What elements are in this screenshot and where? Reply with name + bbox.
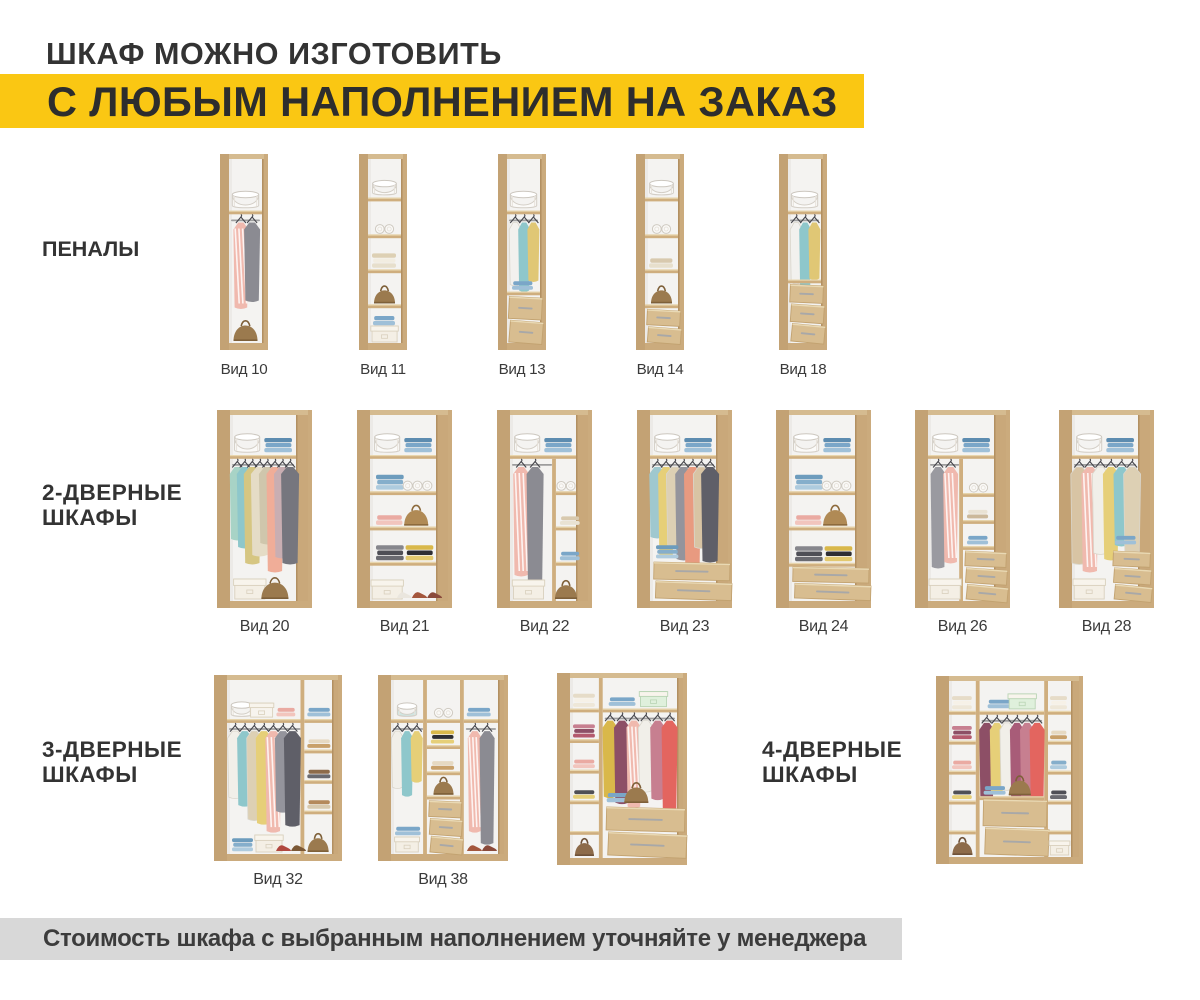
svg-text:Стоимость шкафа с выбранным на: Стоимость шкафа с выбранным наполнением … [43, 925, 867, 952]
svg-text:Вид 21: Вид 21 [380, 618, 430, 635]
svg-text:Вид 26: Вид 26 [938, 618, 988, 635]
svg-text:Вид 23: Вид 23 [660, 618, 710, 635]
svg-text:ШКАФ МОЖНО ИЗГОТОВИТЬ: ШКАФ МОЖНО ИЗГОТОВИТЬ [46, 37, 502, 71]
svg-text:Вид 24: Вид 24 [799, 618, 849, 635]
svg-text:Вид 32: Вид 32 [253, 871, 303, 888]
svg-text:3-ДВЕРНЫЕ: 3-ДВЕРНЫЕ [42, 737, 182, 762]
svg-text:С ЛЮБЫМ НАПОЛНЕНИЕМ НА ЗАКАЗ: С ЛЮБЫМ НАПОЛНЕНИЕМ НА ЗАКАЗ [47, 78, 838, 125]
svg-text:ПЕНАЛЫ: ПЕНАЛЫ [42, 237, 139, 261]
svg-text:Вид 28: Вид 28 [1082, 618, 1132, 635]
svg-text:Вид 14: Вид 14 [637, 361, 684, 378]
svg-text:2-ДВЕРНЫЕ: 2-ДВЕРНЫЕ [42, 480, 182, 505]
svg-text:Вид 11: Вид 11 [360, 361, 406, 378]
svg-text:ШКАФЫ: ШКАФЫ [762, 762, 858, 787]
svg-text:4-ДВЕРНЫЕ: 4-ДВЕРНЫЕ [762, 737, 902, 762]
svg-text:Вид 20: Вид 20 [240, 618, 290, 635]
svg-text:Вид 22: Вид 22 [520, 618, 570, 635]
svg-text:Вид 38: Вид 38 [418, 871, 468, 888]
svg-text:Вид 13: Вид 13 [499, 361, 546, 378]
svg-text:Вид 10: Вид 10 [221, 361, 268, 378]
svg-text:ШКАФЫ: ШКАФЫ [42, 762, 138, 787]
svg-text:Вид 18: Вид 18 [780, 361, 827, 378]
svg-text:ШКАФЫ: ШКАФЫ [42, 505, 138, 530]
